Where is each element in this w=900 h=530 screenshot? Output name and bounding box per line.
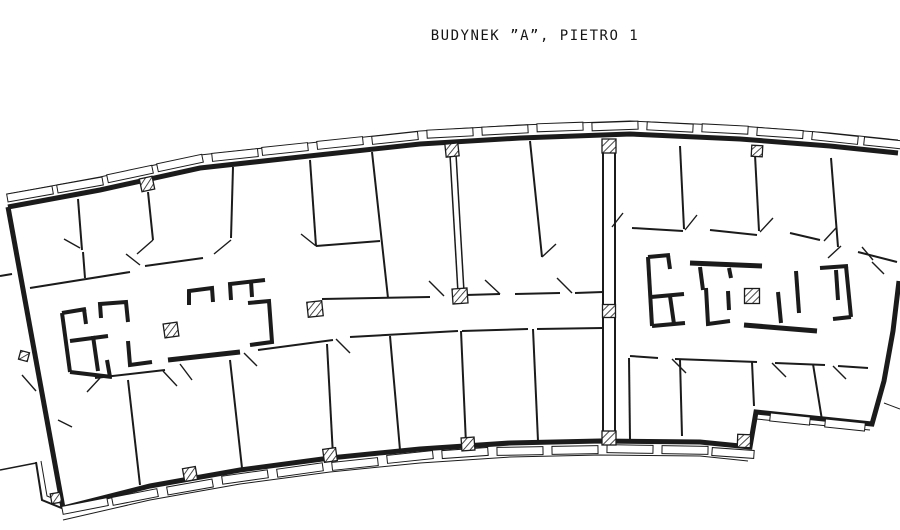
door-leaf bbox=[824, 228, 836, 241]
corridor-wall bbox=[322, 297, 430, 299]
core-wall bbox=[230, 280, 265, 300]
door-leaf bbox=[87, 378, 100, 392]
window bbox=[497, 447, 543, 456]
window bbox=[607, 445, 653, 454]
window bbox=[647, 122, 693, 132]
door-leaf bbox=[137, 240, 153, 254]
corridor-wall bbox=[632, 228, 683, 231]
door-leaf bbox=[58, 420, 72, 427]
corridor-wall bbox=[515, 293, 560, 294]
partition bbox=[831, 158, 838, 247]
core-wall bbox=[729, 268, 731, 278]
column bbox=[737, 434, 750, 447]
corridor-wall bbox=[145, 258, 203, 266]
core-wall bbox=[778, 292, 781, 323]
door-leaf bbox=[772, 363, 786, 377]
column bbox=[139, 176, 154, 191]
corridor-wall bbox=[858, 252, 897, 262]
window bbox=[552, 446, 598, 455]
door-leaf bbox=[833, 366, 846, 379]
column bbox=[307, 301, 323, 317]
core-wall bbox=[93, 336, 98, 371]
corridor-wall bbox=[838, 366, 868, 368]
corridor-wall bbox=[675, 359, 757, 362]
core-wall bbox=[668, 255, 670, 269]
corridor-wall bbox=[710, 230, 757, 235]
partition bbox=[230, 360, 242, 468]
door-leaf bbox=[163, 371, 177, 386]
door-leaf bbox=[485, 280, 500, 294]
door-leaf bbox=[828, 246, 841, 258]
partition bbox=[755, 155, 759, 231]
partition bbox=[390, 336, 400, 450]
corridor-wall bbox=[537, 328, 603, 329]
core-wall bbox=[652, 323, 685, 326]
core-wall bbox=[651, 294, 684, 297]
window bbox=[427, 128, 473, 138]
partition bbox=[530, 141, 542, 257]
core-wall bbox=[251, 281, 252, 297]
partition bbox=[231, 167, 233, 238]
corridor-wall bbox=[790, 233, 820, 240]
partition bbox=[533, 329, 538, 441]
partition bbox=[461, 331, 466, 444]
floor-plan-canvas bbox=[0, 0, 900, 530]
stub-wall-left-upper bbox=[0, 274, 12, 276]
door-leaf bbox=[760, 218, 773, 232]
partition bbox=[629, 358, 630, 439]
door-leaf bbox=[244, 353, 257, 366]
core-wall bbox=[700, 267, 703, 290]
core-wall bbox=[690, 263, 762, 266]
core-wall bbox=[62, 313, 70, 372]
core-wall bbox=[836, 270, 838, 300]
core-wall bbox=[648, 257, 652, 326]
partition bbox=[680, 146, 684, 229]
door-leaf bbox=[542, 244, 556, 257]
partition bbox=[316, 241, 380, 246]
door-leaf bbox=[872, 262, 884, 274]
window bbox=[317, 137, 364, 150]
window bbox=[592, 121, 638, 131]
core-wall bbox=[833, 317, 851, 319]
door-leaf bbox=[22, 375, 36, 391]
partition bbox=[148, 192, 153, 240]
door-leaf bbox=[336, 339, 350, 353]
partition bbox=[310, 160, 316, 246]
column bbox=[751, 145, 763, 157]
column bbox=[745, 289, 760, 304]
door-leaf bbox=[672, 359, 686, 373]
corridor-wall bbox=[630, 356, 658, 358]
corridor-wall bbox=[466, 294, 500, 295]
corridor-wall bbox=[350, 331, 458, 337]
door-leaf bbox=[685, 215, 697, 230]
core-wall bbox=[744, 325, 817, 331]
partition bbox=[752, 362, 754, 406]
door-leaf bbox=[429, 281, 444, 296]
partition bbox=[327, 344, 333, 456]
core-wall bbox=[70, 372, 112, 377]
window bbox=[537, 122, 583, 132]
column bbox=[602, 431, 616, 445]
partition bbox=[128, 380, 140, 485]
partition bbox=[83, 252, 85, 278]
window bbox=[757, 127, 803, 138]
door-leaf bbox=[214, 240, 231, 254]
core-wall bbox=[70, 336, 108, 341]
column bbox=[18, 350, 29, 361]
stub-wall-left-lower bbox=[0, 463, 36, 470]
column bbox=[323, 448, 338, 463]
core-wall bbox=[168, 352, 240, 360]
column bbox=[603, 305, 616, 318]
door-leaf bbox=[126, 254, 140, 265]
corridor-wall bbox=[575, 292, 603, 293]
column bbox=[163, 322, 179, 338]
drawing-sheet: BUDYNEK ”A”, PIETRO 1 bbox=[0, 0, 900, 530]
door-leaf bbox=[612, 213, 623, 227]
corridor-wall bbox=[30, 272, 130, 288]
column bbox=[50, 492, 62, 504]
window bbox=[262, 143, 309, 156]
window bbox=[662, 446, 708, 455]
partition bbox=[78, 199, 82, 250]
corridor-wall bbox=[775, 363, 825, 365]
window bbox=[702, 124, 748, 134]
core-wall bbox=[128, 341, 152, 365]
door-leaf bbox=[301, 234, 316, 246]
partition bbox=[813, 364, 822, 420]
core-wall bbox=[670, 296, 674, 324]
column bbox=[461, 437, 475, 451]
door-leaf bbox=[180, 364, 192, 380]
column bbox=[182, 466, 197, 481]
core-wall bbox=[248, 301, 272, 345]
window bbox=[212, 149, 259, 162]
core-wall bbox=[820, 266, 848, 268]
window-band-outline-bottom bbox=[63, 455, 748, 520]
window bbox=[864, 137, 900, 149]
column bbox=[452, 288, 468, 304]
door-leaf bbox=[64, 239, 80, 248]
floor-plan-geometry bbox=[0, 121, 900, 520]
column bbox=[445, 143, 459, 157]
window bbox=[482, 125, 528, 135]
core-wall bbox=[189, 288, 213, 305]
partition bbox=[372, 152, 388, 298]
core-wall bbox=[728, 291, 729, 310]
column bbox=[602, 139, 616, 153]
partition bbox=[680, 360, 682, 436]
door-leaf bbox=[557, 278, 572, 293]
corridor-wall bbox=[462, 329, 528, 331]
core-wall bbox=[846, 266, 851, 317]
window bbox=[812, 132, 859, 145]
core-wall bbox=[796, 271, 799, 313]
core-wall bbox=[100, 302, 128, 322]
core-wall bbox=[84, 309, 86, 324]
stub-wall-right bbox=[884, 403, 900, 409]
